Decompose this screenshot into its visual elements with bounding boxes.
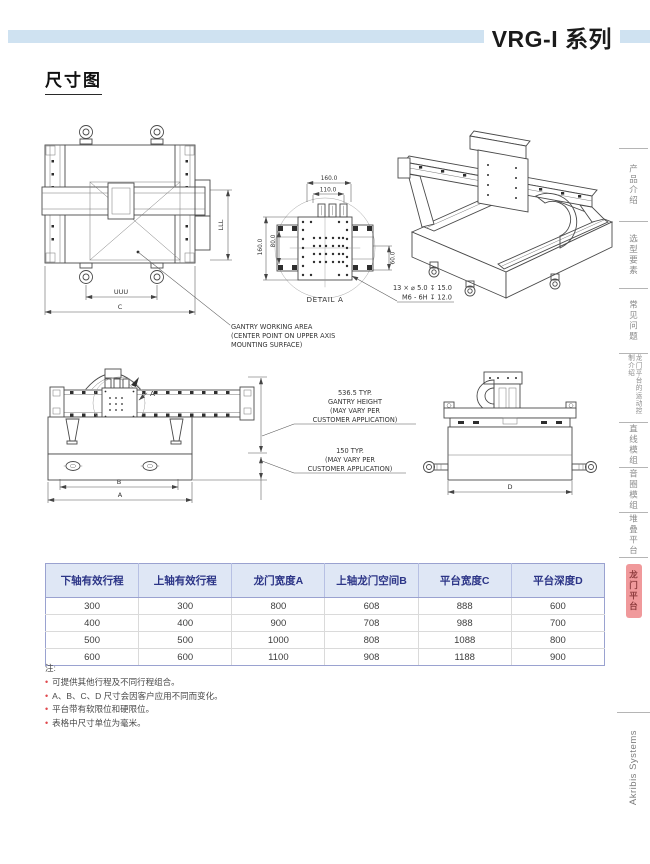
svg-text:GANTRY HEIGHT: GANTRY HEIGHT	[328, 398, 383, 406]
cell: 900	[232, 615, 325, 632]
detail-flag-label: A	[150, 389, 156, 398]
cell: 600	[511, 598, 604, 615]
top-view-drawing	[42, 126, 230, 326]
dim-label-b: B	[117, 478, 121, 486]
dim-160-top: 160.0	[321, 176, 338, 182]
cell: 400	[46, 615, 139, 632]
dim-label-uuu: UUU	[114, 288, 129, 296]
dim-label-c: C	[118, 303, 123, 311]
sidebar-tab-linear-module[interactable]: 直线模组	[619, 422, 648, 467]
svg-text:CUSTOMER APPLICATION): CUSTOMER APPLICATION)	[308, 465, 393, 473]
sidebar-tab-selection-elements[interactable]: 选型要素	[619, 221, 648, 288]
footnotes: 注: • 可提供其他行程及不同行程组合。 • A、B、C、D 尺寸会因客户应用不…	[45, 662, 223, 730]
cell: 888	[418, 598, 511, 615]
brand-vertical: Akribis Systems	[617, 712, 650, 823]
sidebar-tab-motion-control-intro[interactable]: 龙门平台的运动控制介绍	[619, 353, 648, 422]
gantry-height-annotation: 536.5 TYP. GANTRY HEIGHT (MAY VARY PER C…	[294, 389, 416, 424]
bullet-icon: •	[45, 690, 48, 704]
cell: 908	[325, 649, 418, 666]
svg-text:(MAY VARY PER: (MAY VARY PER	[325, 456, 375, 464]
cell: 500	[46, 632, 139, 649]
svg-text:536.5 TYP.: 536.5 TYP.	[338, 389, 372, 397]
note-item: • 表格中尺寸单位为毫米。	[45, 717, 223, 731]
svg-text:CUSTOMER APPLICATION): CUSTOMER APPLICATION)	[313, 416, 398, 424]
svg-text:GANTRY WORKING AREA: GANTRY WORKING AREA	[231, 323, 313, 331]
cell: 400	[139, 615, 232, 632]
cell: 1000	[232, 632, 325, 649]
bullet-icon: •	[45, 703, 48, 717]
cell: 808	[325, 632, 418, 649]
note-item: • 平台带有软限位和硬限位。	[45, 703, 223, 717]
cell: 1100	[232, 649, 325, 666]
base-height-annotation: 150 TYP. (MAY VARY PER CUSTOMER APPLICAT…	[294, 447, 406, 473]
cell: 800	[232, 598, 325, 615]
svg-text:(CENTER POINT ON UPPER AXIS: (CENTER POINT ON UPPER AXIS	[231, 332, 335, 340]
cell: 300	[139, 598, 232, 615]
table-header-row: 下轴有效行程 上轴有效行程 龙门宽度A 上轴龙门空间B 平台宽度C 平台深度D	[46, 564, 605, 598]
side-view-dimensions: D	[448, 481, 572, 495]
dim-110-top: 110.0	[320, 188, 337, 194]
dim-80-left: 80.0	[271, 234, 277, 247]
dim-label-a: A	[118, 491, 123, 499]
svg-text:150 TYP.: 150 TYP.	[336, 447, 364, 455]
dimension-table: 下轴有效行程 上轴有效行程 龙门宽度A 上轴龙门空间B 平台宽度C 平台深度D …	[45, 563, 605, 666]
col-header-platform-depth-d: 平台深度D	[511, 564, 604, 598]
svg-text:(MAY VARY PER: (MAY VARY PER	[330, 407, 380, 415]
note-item: • 可提供其他行程及不同行程组合。	[45, 676, 223, 690]
col-header-upper-stroke: 上轴有效行程	[139, 564, 232, 598]
cell: 300	[46, 598, 139, 615]
detail-a-drawing	[275, 198, 375, 298]
detail-a-label: DETAIL A	[307, 295, 344, 304]
dim-60-right: 60.0	[391, 251, 397, 264]
cell: 800	[511, 632, 604, 649]
cell: 988	[418, 615, 511, 632]
front-view-drawing: A	[48, 369, 254, 480]
cell: 1088	[418, 632, 511, 649]
cell: 500	[139, 632, 232, 649]
cell: 708	[325, 615, 418, 632]
sidebar-tab-faq[interactable]: 常见问题	[619, 288, 648, 353]
col-header-gantry-width-a: 龙门宽度A	[232, 564, 325, 598]
sidebar-tab-product-intro[interactable]: 产品介绍	[619, 148, 648, 221]
table-row: 400 400 900 708 988 700	[46, 615, 605, 632]
sidebar-tab-gantry-platform[interactable]: 龙门平台	[619, 557, 648, 618]
table-row: 500 500 1000 808 1088 800	[46, 632, 605, 649]
dimension-drawings-canvas: UUU C LLL GANTRY WORKING AREA (CENTER PO…	[0, 0, 650, 864]
col-header-gantry-space-b: 上轴龙门空间B	[325, 564, 418, 598]
table-row: 300 300 800 608 888 600	[46, 598, 605, 615]
dim-160-left: 160.0	[258, 238, 264, 255]
cell: 900	[511, 649, 604, 666]
dim-label-d: D	[507, 483, 512, 491]
thread-callout-line2: M6 - 6H ↧ 12.0	[402, 294, 452, 302]
dim-label-lll: LLL	[217, 219, 225, 230]
sidebar-tab-stacked-platform[interactable]: 堆叠平台	[619, 512, 648, 557]
svg-text:MOUNTING SURFACE): MOUNTING SURFACE)	[231, 341, 302, 349]
col-header-lower-stroke: 下轴有效行程	[46, 564, 139, 598]
thread-callout-line1: 13 × ⌀ 5.0 ↧ 15.0	[393, 284, 452, 292]
note-item: • A、B、C、D 尺寸会因客户应用不同而变化。	[45, 690, 223, 704]
side-view-drawing	[424, 372, 597, 480]
catalog-page: VRG-I 系列 尺寸图	[0, 0, 650, 864]
side-tab-bar: 产品介绍 选型要素 常见问题 龙门平台的运动控制介绍 直线模组 音圈模组 堆叠平…	[617, 0, 650, 864]
working-area-note: GANTRY WORKING AREA (CENTER POINT ON UPP…	[231, 323, 335, 349]
col-header-platform-width-c: 平台宽度C	[418, 564, 511, 598]
sidebar-tab-voice-coil-module[interactable]: 音圈模组	[619, 467, 648, 512]
notes-label: 注:	[45, 662, 223, 674]
bullet-icon: •	[45, 676, 48, 690]
bullet-icon: •	[45, 717, 48, 731]
isometric-view-drawing	[398, 131, 612, 298]
cell: 608	[325, 598, 418, 615]
cell: 1188	[418, 649, 511, 666]
cell: 700	[511, 615, 604, 632]
